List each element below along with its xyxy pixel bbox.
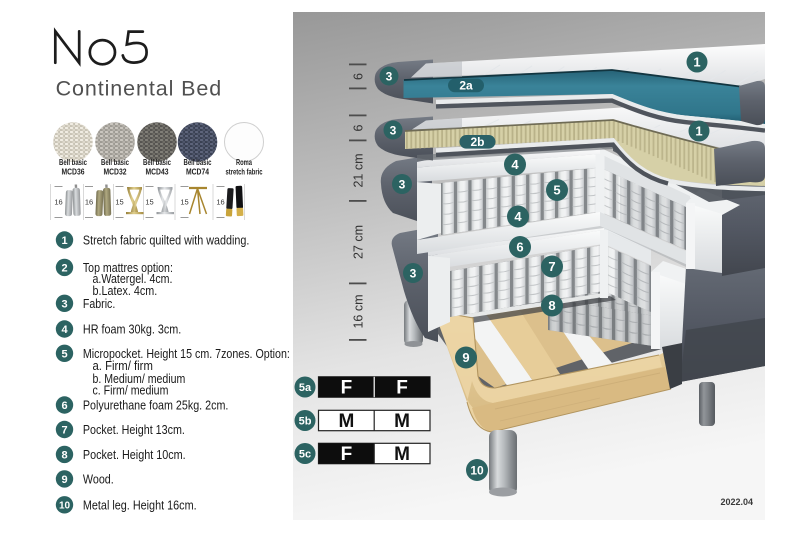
svg-text:8: 8 — [61, 449, 67, 461]
svg-text:1: 1 — [693, 55, 700, 70]
svg-text:7: 7 — [548, 259, 555, 274]
svg-text:3: 3 — [410, 266, 417, 280]
svg-text:Polyurethane foam 25kg. 2cm.: Polyurethane foam 25kg. 2cm. — [83, 398, 229, 413]
svg-text:5b: 5b — [299, 416, 312, 428]
svg-text:6: 6 — [61, 400, 67, 412]
svg-text:3: 3 — [386, 69, 393, 83]
svg-text:8: 8 — [548, 298, 555, 313]
svg-text:2: 2 — [61, 262, 67, 274]
svg-text:4: 4 — [514, 209, 522, 224]
svg-text:HR foam 30kg. 3cm.: HR foam 30kg. 3cm. — [83, 322, 181, 337]
svg-text:27 cm: 27 cm — [351, 225, 365, 259]
svg-text:2a: 2a — [459, 79, 473, 93]
svg-text:c. Firm/ medium: c. Firm/ medium — [93, 383, 169, 398]
svg-text:3: 3 — [390, 123, 397, 137]
svg-text:5a: 5a — [299, 382, 312, 394]
svg-text:4: 4 — [511, 157, 519, 172]
svg-text:3: 3 — [61, 298, 67, 310]
svg-text:Stretch fabric quilted with wa: Stretch fabric quilted with wadding. — [83, 233, 250, 248]
svg-text:5: 5 — [61, 348, 67, 360]
svg-text:M: M — [394, 411, 410, 432]
svg-text:2b: 2b — [470, 135, 484, 149]
svg-text:7: 7 — [61, 425, 67, 437]
svg-text:Metal leg. Height 16cm.: Metal leg. Height 16cm. — [83, 497, 197, 512]
svg-text:6: 6 — [351, 73, 365, 80]
svg-text:9: 9 — [61, 474, 67, 486]
svg-text:1: 1 — [695, 124, 702, 139]
svg-text:6: 6 — [351, 124, 365, 131]
svg-text:Pocket. Height 10cm.: Pocket. Height 10cm. — [83, 447, 186, 462]
svg-text:M: M — [394, 444, 410, 465]
svg-text:21 cm: 21 cm — [351, 153, 365, 187]
svg-text:1: 1 — [61, 235, 67, 247]
svg-text:9: 9 — [462, 350, 469, 365]
svg-text:16 cm: 16 cm — [351, 294, 365, 328]
svg-text:F: F — [396, 378, 408, 399]
svg-text:5c: 5c — [299, 449, 311, 461]
svg-text:F: F — [341, 378, 353, 399]
svg-text:3: 3 — [399, 177, 406, 191]
svg-text:Pocket. Height 13cm.: Pocket. Height 13cm. — [83, 422, 185, 437]
svg-text:10: 10 — [470, 463, 484, 477]
svg-text:5: 5 — [553, 183, 560, 198]
svg-text:6: 6 — [516, 240, 523, 255]
svg-text:M: M — [338, 411, 354, 432]
svg-text:2022.04: 2022.04 — [720, 497, 753, 507]
svg-text:10: 10 — [59, 500, 71, 511]
svg-text:Wood.: Wood. — [83, 471, 114, 486]
svg-text:F: F — [341, 444, 353, 465]
svg-text:4: 4 — [61, 324, 68, 336]
svg-text:Fabric.: Fabric. — [83, 296, 115, 311]
